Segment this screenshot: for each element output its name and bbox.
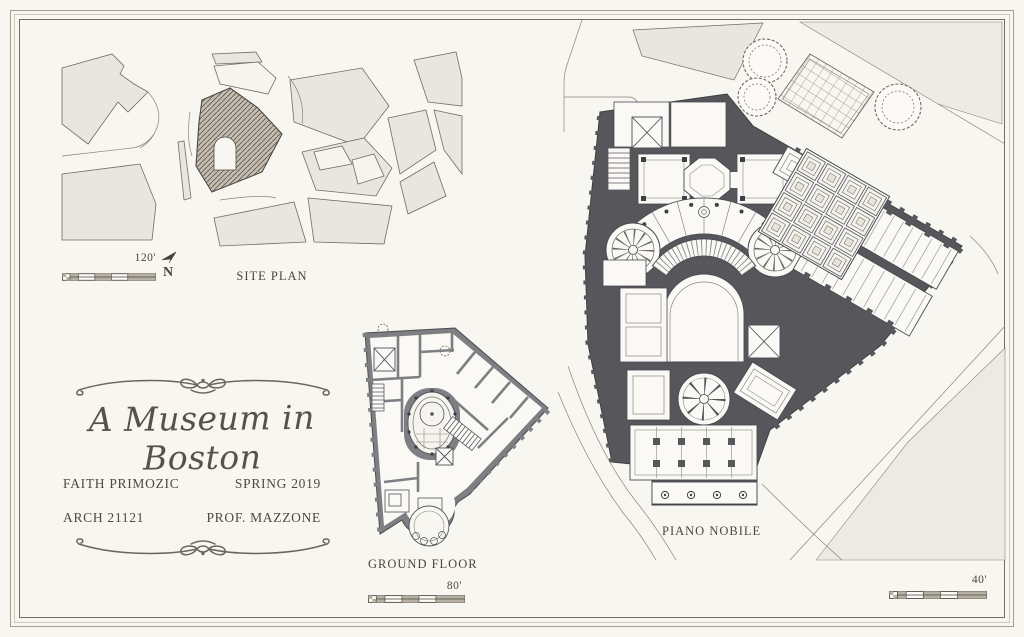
term: SPRING 2019 [235, 476, 321, 492]
city-block [62, 54, 148, 144]
tree-icon [738, 78, 776, 116]
tree-icon [875, 84, 921, 130]
piano-nobile-scale-value: 40' [951, 574, 987, 586]
city-block [816, 348, 1005, 560]
city-block [178, 141, 191, 200]
gallery-room [603, 260, 646, 286]
city-parcel [214, 62, 276, 94]
credit-row-1: FAITH PRIMOZIC SPRING 2019 [63, 476, 321, 492]
grand-gallery [630, 425, 757, 480]
piano-nobile-drawing [558, 14, 1014, 570]
city-block [388, 110, 436, 174]
north-arrow-icon [158, 250, 178, 266]
project-title: A Museum in Boston [60, 398, 345, 479]
drawing-sheet: 120' N SITE PLAN A Museum in Boston FAIT… [0, 0, 1024, 637]
piano-nobile-label: PIANO NOBILE [662, 524, 750, 539]
ground-floor-scale-value: 80' [426, 580, 462, 592]
city-block [290, 68, 389, 146]
small-room [385, 490, 409, 512]
course-number: ARCH 21121 [63, 510, 144, 526]
scale-bar [889, 589, 987, 601]
garden-trellis [778, 54, 874, 138]
flourish-ornament [72, 536, 334, 560]
student-name: FAITH PRIMOZIC [63, 476, 179, 492]
site-plan-drawing [62, 52, 462, 248]
city-block [434, 110, 462, 174]
credit-row-2: ARCH 21121 PROF. MAZZONE [63, 510, 321, 526]
professor-name: PROF. MAZZONE [206, 510, 321, 526]
stair [608, 148, 630, 190]
city-block [308, 198, 392, 244]
entry-hall [614, 102, 726, 148]
suite-room [638, 154, 690, 204]
site-plan-label: SITE PLAN [230, 269, 314, 284]
north-label: N [160, 265, 176, 281]
ground-floor-label: GROUND FLOOR [368, 557, 464, 572]
portico [652, 482, 757, 504]
flourish-ornament [72, 374, 334, 398]
site-courtyard [214, 137, 236, 170]
service-shaft [748, 325, 780, 358]
city-block [62, 164, 156, 240]
scale-bar [368, 593, 465, 605]
stair [372, 384, 384, 411]
octagon-hall [684, 158, 730, 202]
city-block [214, 202, 306, 246]
gallery-room [627, 370, 670, 420]
city-block [414, 52, 462, 106]
site-plan-scale-value: 120' [112, 252, 156, 264]
service-shaft [436, 448, 453, 465]
city-block [633, 23, 763, 80]
tree-icon [743, 39, 787, 83]
gallery-room [620, 288, 667, 362]
fan-room [678, 373, 730, 425]
scale-bar [62, 271, 156, 283]
apse-hall [664, 274, 744, 362]
museum-site-footprint [196, 88, 282, 192]
elevator-shaft [374, 348, 395, 371]
